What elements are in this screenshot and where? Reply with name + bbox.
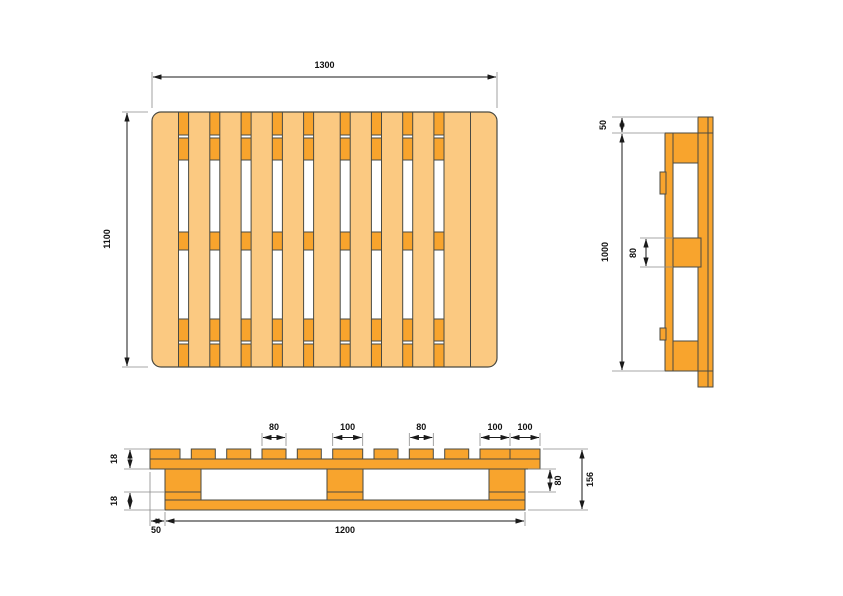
dim-label-board-5: 100 (517, 422, 532, 432)
front-top-plank (150, 459, 540, 469)
deck-board (350, 112, 371, 367)
front-deck-board-ends (150, 449, 540, 459)
dim-front-top-thickness: 18 (109, 449, 150, 469)
dim-label-overall-height: 156 (585, 472, 595, 487)
dim-label-board-2: 100 (340, 422, 355, 432)
dim-label-top-thickness: 18 (109, 454, 119, 464)
dim-label-bottom-thickness: 18 (109, 496, 119, 506)
dim-label-board-4: 100 (487, 422, 502, 432)
dim-label-top-width: 1300 (314, 60, 334, 70)
dim-front-bearer-height: 80 (528, 469, 563, 492)
drawing-svg: 1300 1100 (0, 0, 843, 596)
dim-front-bottom-thickness: 18 (109, 492, 165, 510)
deck-board (220, 112, 241, 367)
pallet-technical-drawing: 1300 1100 (0, 0, 843, 596)
dim-label-side-overhang: 50 (598, 120, 608, 130)
dim-front-boards: 80 100 80 100 100 (262, 422, 540, 446)
front-bearer-plate (165, 492, 201, 500)
dim-label-top-depth: 1100 (102, 229, 112, 249)
dim-top-width: 1300 (152, 60, 497, 108)
dim-label-bearer-span: 1200 (335, 525, 355, 535)
side-bottom-board-end (660, 328, 666, 340)
deck-board (471, 112, 498, 367)
deck-board (314, 112, 341, 367)
deck-board (413, 112, 434, 367)
front-bearer-left (165, 469, 201, 492)
dim-label-bearer-height: 80 (553, 475, 563, 485)
dim-side-overhang: 50 (598, 117, 698, 133)
deck-board (189, 112, 210, 367)
deck-board (152, 112, 179, 367)
dim-top-depth: 1100 (102, 112, 148, 367)
dim-label-board-1: 80 (269, 422, 279, 432)
side-bottom-board-end (660, 172, 666, 194)
side-bearer-top (673, 133, 698, 163)
front-bearer-right (489, 469, 525, 492)
top-deck-boards (152, 112, 497, 367)
deck-board (444, 112, 471, 367)
front-bearer-plate (489, 492, 525, 500)
deck-board (282, 112, 303, 367)
deck-board (251, 112, 272, 367)
top-view: 1300 1100 (102, 60, 499, 368)
side-view: 50 1000 80 (598, 117, 713, 387)
front-view: 80 100 80 100 100 18 (109, 422, 595, 535)
front-bearer-middle (327, 469, 363, 492)
dim-label-end-overhang: 50 (151, 525, 161, 535)
side-bearer-bottom (673, 341, 698, 371)
dim-label-side-inner-height: 1000 (600, 242, 610, 262)
deck-board (382, 112, 403, 367)
dim-label-board-3: 80 (416, 422, 426, 432)
front-bearer-plate (327, 492, 363, 500)
front-bottom-plank (165, 500, 525, 510)
dim-label-side-bearer-width: 80 (628, 248, 638, 258)
side-bearer-middle (673, 238, 701, 267)
